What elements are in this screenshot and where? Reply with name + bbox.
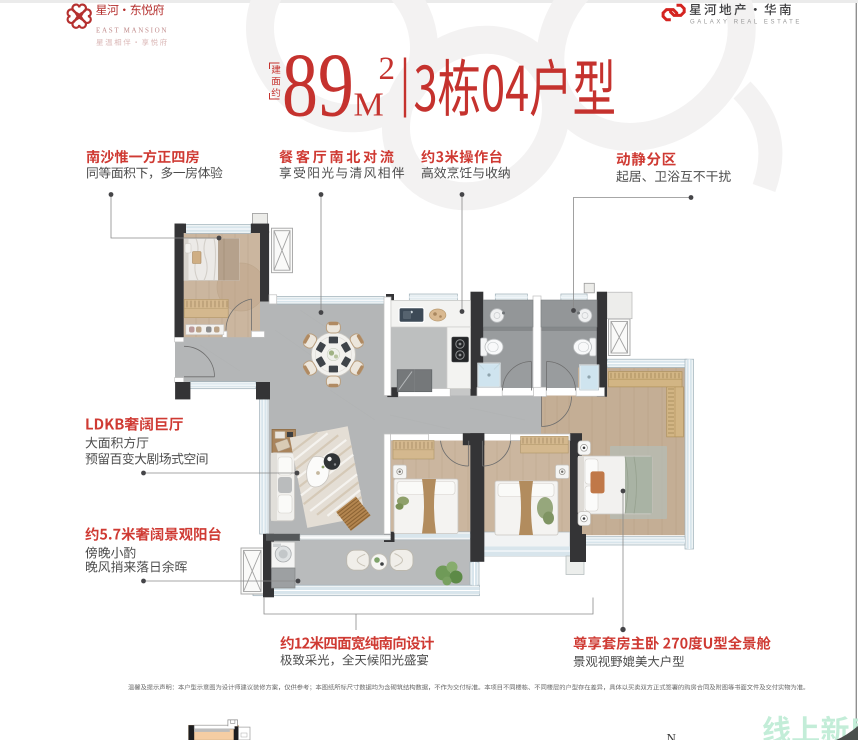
svg-text:M: M — [354, 87, 384, 124]
svg-text:89: 89 — [282, 34, 354, 135]
svg-text:EAST MANSION: EAST MANSION — [96, 27, 168, 35]
svg-text:2: 2 — [379, 51, 396, 87]
svg-text:N: N — [667, 731, 677, 740]
svg-text:GALAXY REAL ESTATE: GALAXY REAL ESTATE — [690, 20, 802, 26]
